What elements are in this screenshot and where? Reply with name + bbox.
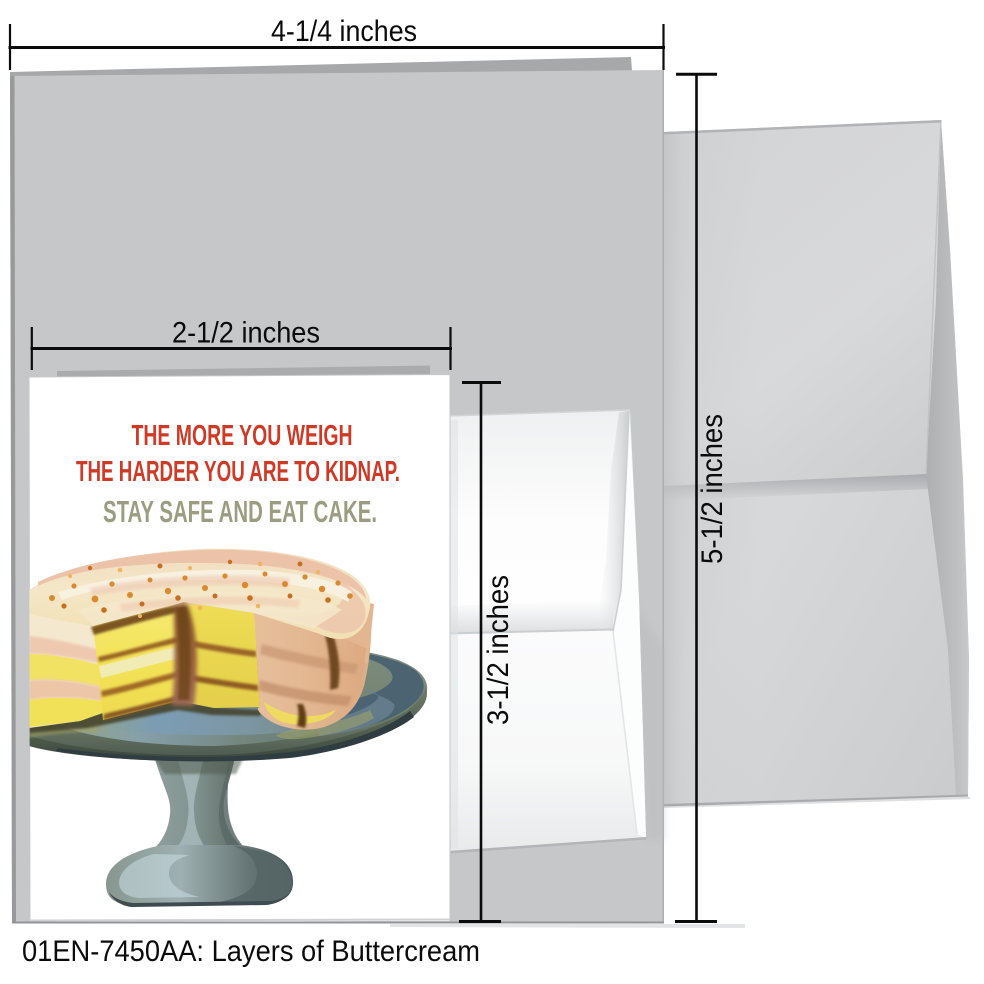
svg-text:STAY SAFE AND EAT CAKE.: STAY SAFE AND EAT CAKE.	[103, 494, 377, 529]
svg-text:01EN-7450AA: Layers of Butterc: 01EN-7450AA: Layers of Buttercream	[22, 935, 480, 968]
svg-text:4-1/4 inches: 4-1/4 inches	[271, 15, 417, 48]
svg-text:5-1/2 inches: 5-1/2 inches	[696, 414, 729, 564]
svg-text:2-1/2 inches: 2-1/2 inches	[172, 317, 320, 350]
svg-text:THE MORE YOU WEIGH: THE MORE YOU WEIGH	[132, 420, 353, 452]
svg-text:THE HARDER YOU ARE TO KIDNAP.: THE HARDER YOU ARE TO KIDNAP.	[76, 456, 400, 488]
svg-text:3-1/2 inches: 3-1/2 inches	[482, 575, 515, 725]
